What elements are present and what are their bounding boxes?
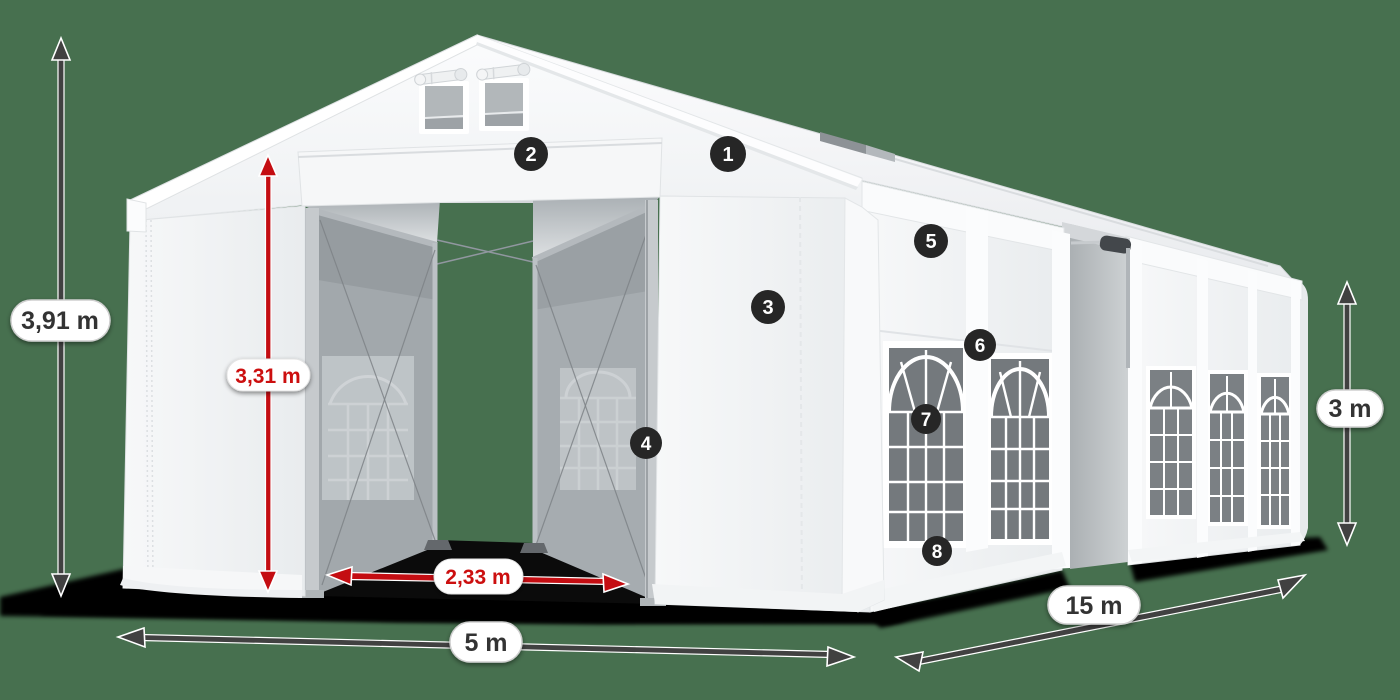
svg-text:2: 2: [525, 144, 536, 166]
svg-text:8: 8: [932, 542, 943, 563]
svg-text:3,31 m: 3,31 m: [235, 365, 300, 388]
svg-text:2,33 m: 2,33 m: [445, 566, 510, 589]
svg-text:15 m: 15 m: [1066, 592, 1123, 620]
svg-text:5 m: 5 m: [464, 629, 507, 657]
svg-text:3 m: 3 m: [1328, 395, 1371, 423]
svg-text:4: 4: [641, 434, 652, 455]
svg-text:6: 6: [975, 336, 986, 357]
svg-text:7: 7: [921, 410, 932, 431]
svg-text:3: 3: [762, 297, 773, 319]
svg-text:1: 1: [722, 144, 733, 166]
svg-text:3,91 m: 3,91 m: [21, 307, 99, 335]
svg-text:5: 5: [925, 231, 936, 253]
